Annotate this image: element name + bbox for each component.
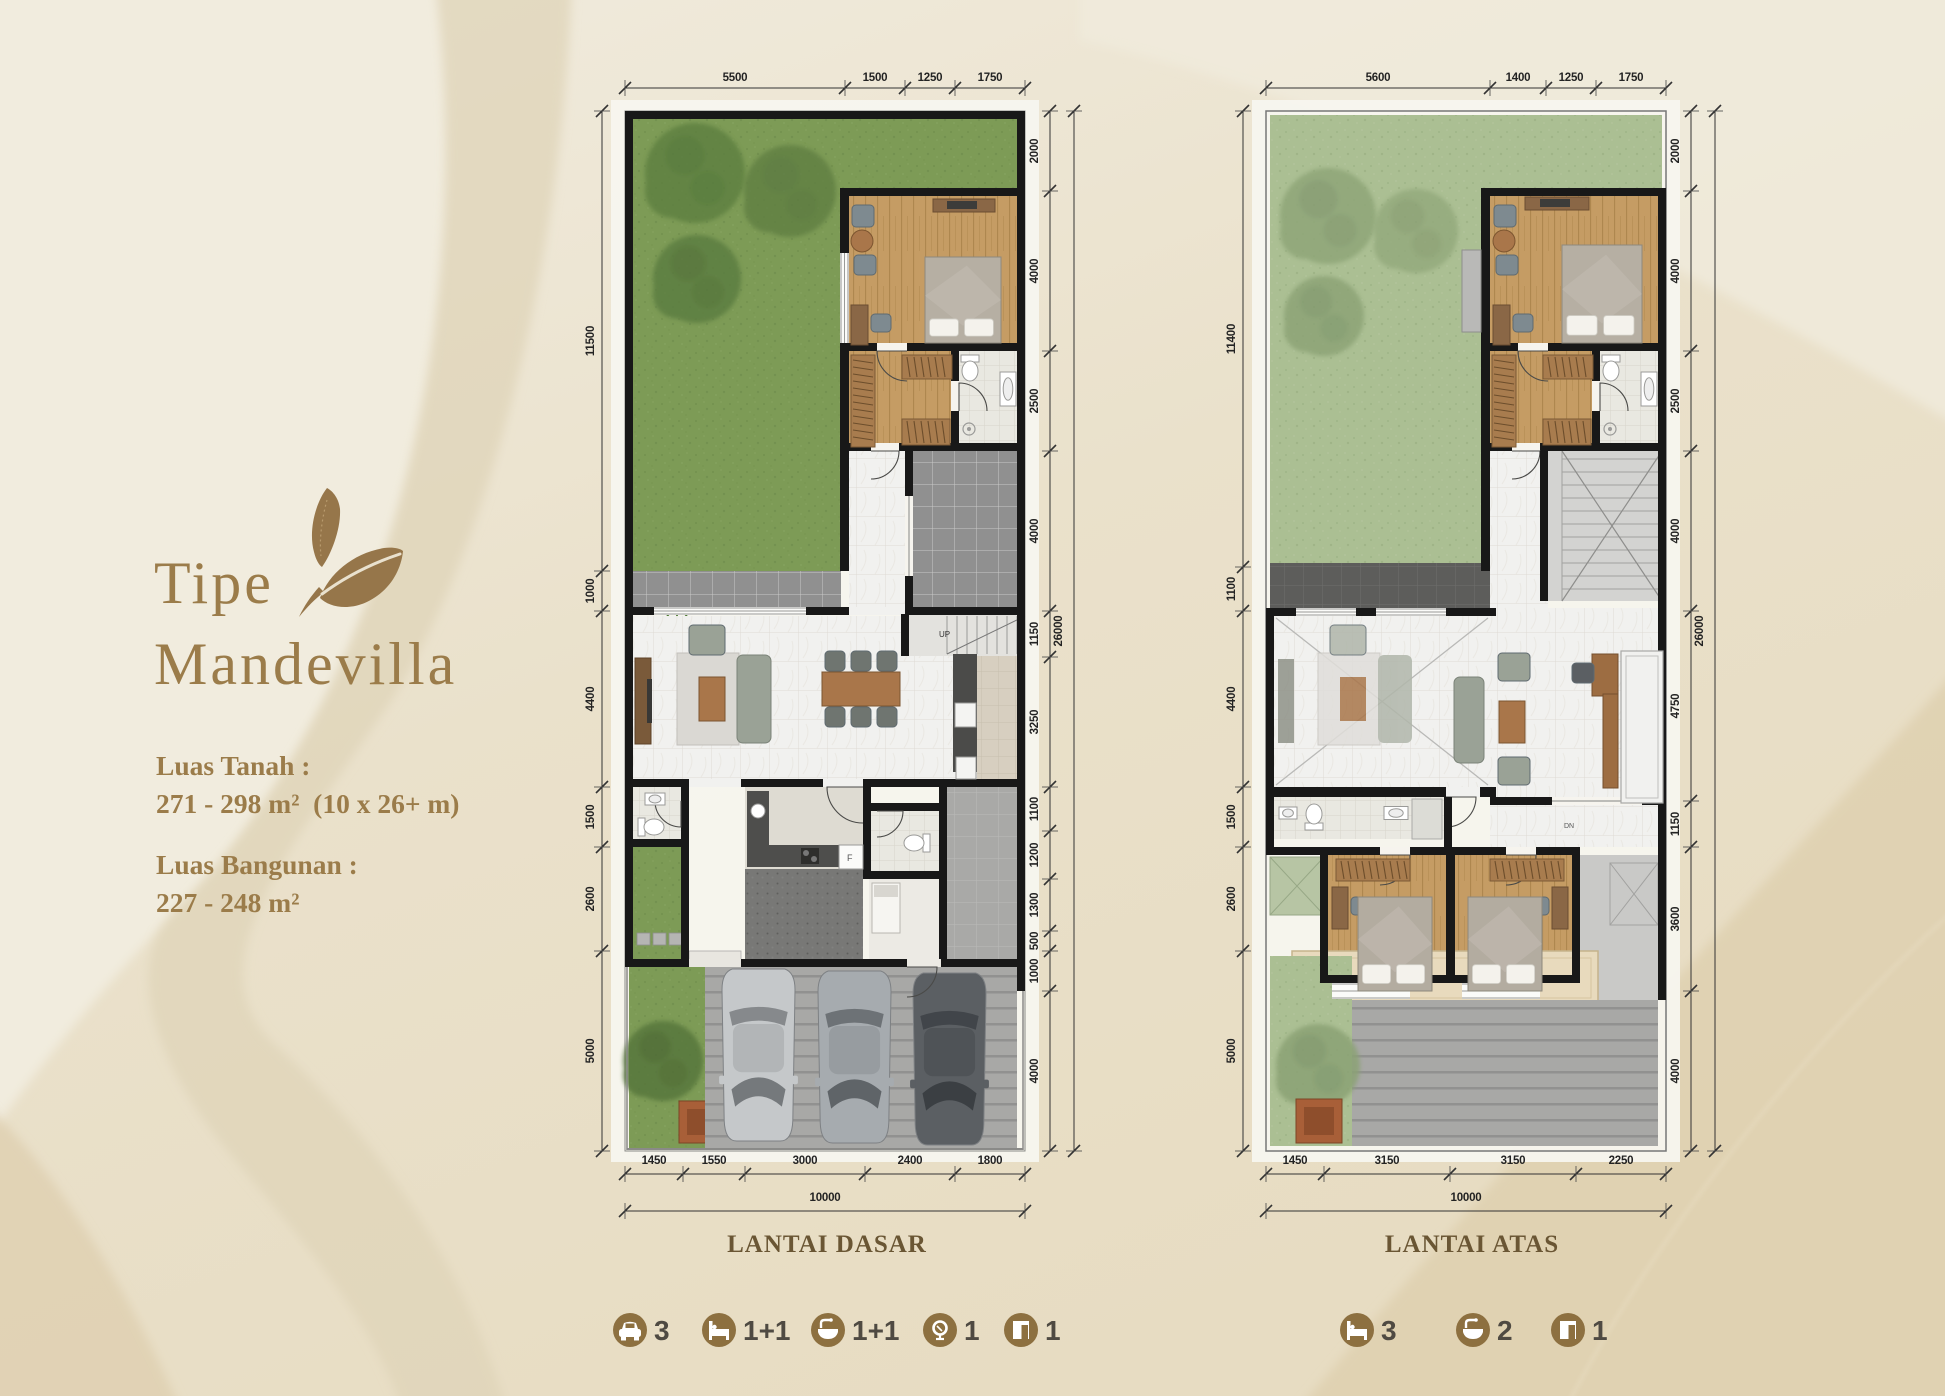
svg-text:2250: 2250 (1609, 1155, 1634, 1167)
svg-text:1550: 1550 (702, 1155, 727, 1167)
svg-text:1+1: 1+1 (852, 1315, 900, 1346)
svg-text:4400: 4400 (1226, 687, 1238, 712)
svg-text:Luas Tanah :: Luas Tanah : (156, 750, 310, 781)
svg-text:4000: 4000 (1670, 259, 1682, 284)
svg-text:1150: 1150 (1670, 812, 1682, 836)
svg-text:1400: 1400 (1506, 72, 1531, 84)
svg-text:1750: 1750 (1619, 72, 1644, 84)
svg-text:F: F (847, 853, 853, 863)
svg-text:1500: 1500 (1226, 805, 1238, 830)
svg-text:2000: 2000 (1029, 139, 1041, 164)
svg-text:DN: DN (1564, 823, 1574, 830)
svg-text:5600: 5600 (1366, 72, 1391, 84)
svg-text:1250: 1250 (1559, 72, 1584, 84)
svg-text:26000: 26000 (1694, 616, 1706, 647)
svg-text:Luas Bangunan :: Luas Bangunan : (156, 849, 358, 880)
svg-text:11400: 11400 (1226, 324, 1238, 354)
svg-text:26000: 26000 (1053, 616, 1065, 647)
svg-text:3: 3 (1381, 1315, 1397, 1346)
svg-text:1750: 1750 (978, 72, 1003, 84)
svg-text:1100: 1100 (1029, 797, 1041, 821)
svg-text:3250: 3250 (1029, 710, 1041, 735)
svg-text:3000: 3000 (793, 1155, 818, 1167)
svg-text:3600: 3600 (1670, 907, 1682, 932)
svg-text:4000: 4000 (1670, 519, 1682, 544)
svg-text:1800: 1800 (978, 1155, 1003, 1167)
svg-text:1150: 1150 (1029, 622, 1041, 646)
svg-text:1100: 1100 (1226, 577, 1238, 601)
svg-text:10000: 10000 (1451, 1192, 1482, 1204)
svg-text:UP: UP (939, 630, 950, 639)
svg-text:1+1: 1+1 (743, 1315, 791, 1346)
svg-text:1: 1 (1045, 1315, 1061, 1346)
svg-text:Mandevilla: Mandevilla (154, 631, 457, 697)
svg-text:4000: 4000 (1029, 1059, 1041, 1084)
svg-text:4400: 4400 (585, 687, 597, 712)
svg-text:5000: 5000 (585, 1039, 597, 1064)
svg-text:1500: 1500 (863, 72, 888, 84)
svg-text:4750: 4750 (1670, 694, 1682, 719)
svg-text:1: 1 (1592, 1315, 1608, 1346)
svg-text:10000: 10000 (810, 1192, 841, 1204)
svg-text:3150: 3150 (1375, 1155, 1400, 1167)
svg-text:227 - 248 m²: 227 - 248 m² (156, 887, 299, 918)
svg-text:271 - 298 m² (10 x 26+ m): 271 - 298 m² (10 x 26+ m) (156, 788, 459, 819)
svg-text:2: 2 (1497, 1315, 1513, 1346)
svg-text:1500: 1500 (585, 805, 597, 830)
svg-text:4000: 4000 (1029, 259, 1041, 284)
svg-text:3: 3 (654, 1315, 670, 1346)
svg-text:1000: 1000 (1029, 959, 1041, 984)
svg-text:11500: 11500 (585, 326, 597, 356)
svg-text:2600: 2600 (1226, 887, 1238, 912)
svg-text:4000: 4000 (1029, 519, 1041, 544)
svg-text:500: 500 (1029, 932, 1041, 951)
svg-text:2500: 2500 (1029, 389, 1041, 414)
svg-text:LANTAI ATAS: LANTAI ATAS (1385, 1231, 1559, 1258)
svg-text:2400: 2400 (898, 1155, 923, 1167)
svg-text:3150: 3150 (1501, 1155, 1526, 1167)
svg-text:1450: 1450 (642, 1155, 667, 1167)
svg-text:2000: 2000 (1670, 139, 1682, 164)
svg-text:1450: 1450 (1283, 1155, 1308, 1167)
svg-text:1250: 1250 (918, 72, 943, 84)
svg-text:1: 1 (964, 1315, 980, 1346)
svg-text:LANTAI DASAR: LANTAI DASAR (727, 1231, 927, 1258)
svg-text:2500: 2500 (1670, 389, 1682, 414)
svg-text:5500: 5500 (723, 72, 748, 84)
svg-text:4000: 4000 (1670, 1059, 1682, 1084)
svg-text:1200: 1200 (1029, 843, 1041, 868)
svg-text:1300: 1300 (1029, 893, 1041, 918)
svg-text:2600: 2600 (585, 887, 597, 912)
svg-text:5000: 5000 (1226, 1039, 1238, 1064)
svg-text:Tipe: Tipe (154, 550, 274, 616)
svg-text:1000: 1000 (585, 579, 597, 604)
